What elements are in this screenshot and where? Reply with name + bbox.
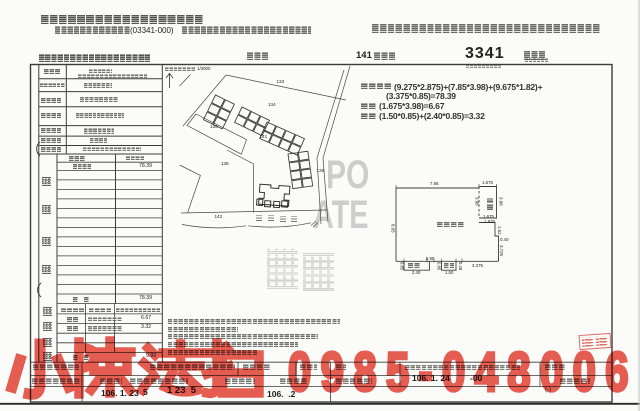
svg-text:0985-048006: 0985-048006 <box>288 342 638 403</box>
